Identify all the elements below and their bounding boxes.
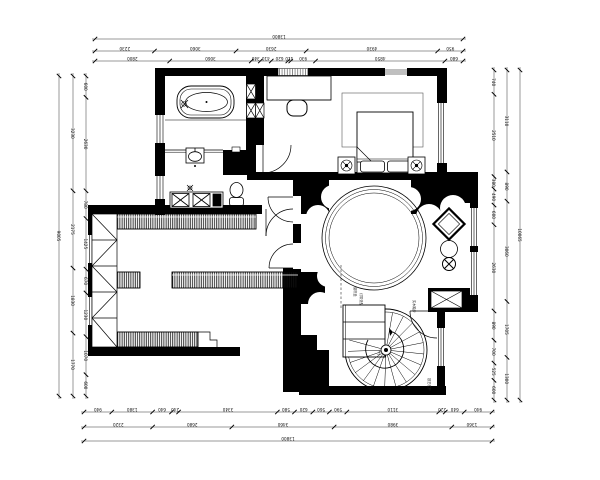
dim-value: 1770 xyxy=(70,359,75,370)
dim-row-left_rows-1: 3230217518301770 xyxy=(70,73,75,399)
dim-value: 2320 xyxy=(113,422,124,427)
wall-basin xyxy=(165,148,223,167)
ornament-bite xyxy=(308,292,332,316)
dim-value: 600 xyxy=(83,381,88,389)
bedroom xyxy=(267,76,425,174)
dim-value: 1830 xyxy=(70,295,75,306)
dim-value: 3060 xyxy=(205,56,216,61)
dim-value: 1300 xyxy=(504,373,509,384)
arrowhead-icon xyxy=(389,328,393,336)
column-box xyxy=(256,103,265,118)
wall-step-1 xyxy=(301,335,317,392)
dim-value: 2800 xyxy=(127,56,138,61)
dim-value: 3980 xyxy=(387,422,398,427)
dim-value: 2510 xyxy=(491,130,496,141)
dim-value: 600 xyxy=(83,83,88,91)
dim-value: 3460 xyxy=(277,422,288,427)
dim-value: 1360 xyxy=(466,422,477,427)
vanity-sink xyxy=(213,194,221,206)
window-top-hatch xyxy=(278,69,308,76)
dim-value: 590 xyxy=(334,407,342,412)
annotation-curtain_note: 窗帘盒 xyxy=(353,287,358,297)
niche-box xyxy=(232,147,240,152)
desk xyxy=(267,76,331,116)
spiral-staircase xyxy=(343,305,427,391)
door-arc xyxy=(263,145,291,173)
nightstand-left xyxy=(338,157,355,174)
dim-value: 2680 xyxy=(187,422,198,427)
annotation-stair_note_top: 实木踏步 xyxy=(412,300,417,313)
dim-value: 640 xyxy=(158,407,166,412)
dim-value: 4930 xyxy=(366,46,377,51)
dim-row-bottom_rows-1: 23202680346039801360 xyxy=(81,422,495,429)
dim-row-top_rows-0: 13800 xyxy=(92,34,466,41)
dim-value: 1230 xyxy=(83,309,88,320)
wall-wc-block xyxy=(223,150,256,175)
dim-value: 670 xyxy=(83,277,88,285)
dim-value: 1705 xyxy=(504,324,509,335)
floor-plan-canvas: 1380022303060263049309502800306034041062… xyxy=(0,0,600,480)
ornament-bite xyxy=(416,204,442,230)
dim-value: 3110 xyxy=(387,407,398,412)
step-notch xyxy=(198,332,217,347)
wardrobe-band xyxy=(100,214,256,229)
dim-value: 3340 xyxy=(222,407,233,412)
nightstand-right xyxy=(408,157,425,174)
dim-row-bottom_rows-2: 13800 xyxy=(81,436,495,443)
table-lamp-icon xyxy=(443,258,456,271)
side-table xyxy=(441,241,458,258)
dim-value: 2230 xyxy=(119,46,130,51)
dim-value: 640 xyxy=(450,407,458,412)
dim-value: 240 xyxy=(171,407,179,412)
dim-value: 340 xyxy=(251,56,259,61)
wall-cloak-bottom xyxy=(88,347,240,356)
dim-value: 1425 xyxy=(83,238,88,249)
ornament-bite xyxy=(317,265,339,287)
dim-value: 3060 xyxy=(190,46,201,51)
dim-value: 2175 xyxy=(70,224,75,235)
dim-value: 410 xyxy=(261,56,269,61)
dim-value: 1380 xyxy=(127,407,138,412)
dim-value: 3060 xyxy=(504,246,509,257)
dim-value: 110 xyxy=(285,56,293,61)
dim-value: 4850 xyxy=(375,56,386,61)
column-box xyxy=(247,84,256,99)
opening-door-1 xyxy=(293,196,301,224)
dim-row-top_rows-2: 280030603404106201109304850680 xyxy=(92,56,466,63)
dim-value: 620 xyxy=(299,407,307,412)
column-box xyxy=(431,291,462,308)
dim-value: 740 xyxy=(491,78,496,86)
dim-value: 680 xyxy=(450,56,458,61)
pillow xyxy=(361,161,385,172)
annotation-stair_up: 上 xyxy=(377,349,382,356)
dim-value: 620 xyxy=(275,56,283,61)
door-arc xyxy=(269,244,293,268)
drain-icon xyxy=(206,101,208,103)
dim-value: 490 xyxy=(491,193,496,201)
dim-value: 9005 xyxy=(56,231,61,242)
cloakroom xyxy=(92,214,298,347)
dim-value: 890 xyxy=(504,183,509,191)
dim-value: 3230 xyxy=(70,128,75,139)
vanity-counter xyxy=(170,185,223,208)
dim-value: 13800 xyxy=(272,34,286,39)
column-box xyxy=(247,103,256,118)
dim-value: 780 xyxy=(83,201,88,209)
bathroom xyxy=(165,86,246,208)
dim-value: 580 xyxy=(282,407,290,412)
toilet xyxy=(230,183,244,207)
wardrobe-band xyxy=(172,272,298,288)
dim-row-left_rows-0: 9005 xyxy=(56,73,61,399)
wall-step-2 xyxy=(317,350,329,392)
bathtub xyxy=(177,86,234,118)
annotation-stair_note_side: 铁艺栏杆 xyxy=(427,378,432,392)
dim-value: 950 xyxy=(446,46,454,51)
faucet-icon xyxy=(181,100,188,108)
dim-value: 700 xyxy=(491,348,496,356)
faucet-icon xyxy=(187,185,193,191)
dim-value: 600 xyxy=(491,386,496,394)
annotation-light_note: 灯带造型 xyxy=(359,293,364,307)
dim-value: 600 xyxy=(491,211,496,219)
wardrobe-shelves xyxy=(92,214,117,347)
dim-value: 890 xyxy=(491,322,496,330)
dim-value: 560 xyxy=(317,407,325,412)
desk-chair xyxy=(287,100,307,116)
dim-value: 2630 xyxy=(265,46,276,51)
opening-door-2 xyxy=(293,243,301,269)
ornament-bite xyxy=(397,187,421,211)
dim-row-top_rows-1: 2230306026304930950 xyxy=(92,46,466,53)
dim-value: 380 xyxy=(491,179,496,187)
floor-plan-page: 1380022303060263049309502800306034041062… xyxy=(0,0,600,480)
dim-value: 940 xyxy=(474,407,482,412)
dim-value: 10065 xyxy=(517,228,522,242)
dim-row-right_rows-0: 74025103804906002630890700525600 xyxy=(491,67,496,403)
bed xyxy=(357,112,413,173)
dim-value: 220 xyxy=(438,407,446,412)
dim-value: 13800 xyxy=(281,436,295,441)
dim-value: 2630 xyxy=(83,139,88,150)
wardrobe-band xyxy=(117,332,198,347)
dim-value: 1070 xyxy=(83,350,88,361)
dim-value: 930 xyxy=(299,56,307,61)
dim-value: 940 xyxy=(94,407,102,412)
dim-value: 3110 xyxy=(504,116,509,127)
dim-row-right_rows-1: 3110890306017051300 xyxy=(504,67,509,403)
dim-value: 525 xyxy=(491,368,496,376)
dim-row-bottom_rows-0: 9401380640240334058062056059031102206409… xyxy=(81,407,495,414)
dim-row-left_rows-2: 6002630780142567012301070600 xyxy=(83,73,88,399)
dim-value: 2630 xyxy=(491,263,496,274)
dim-row-right_rows-2: 10065 xyxy=(517,67,522,403)
